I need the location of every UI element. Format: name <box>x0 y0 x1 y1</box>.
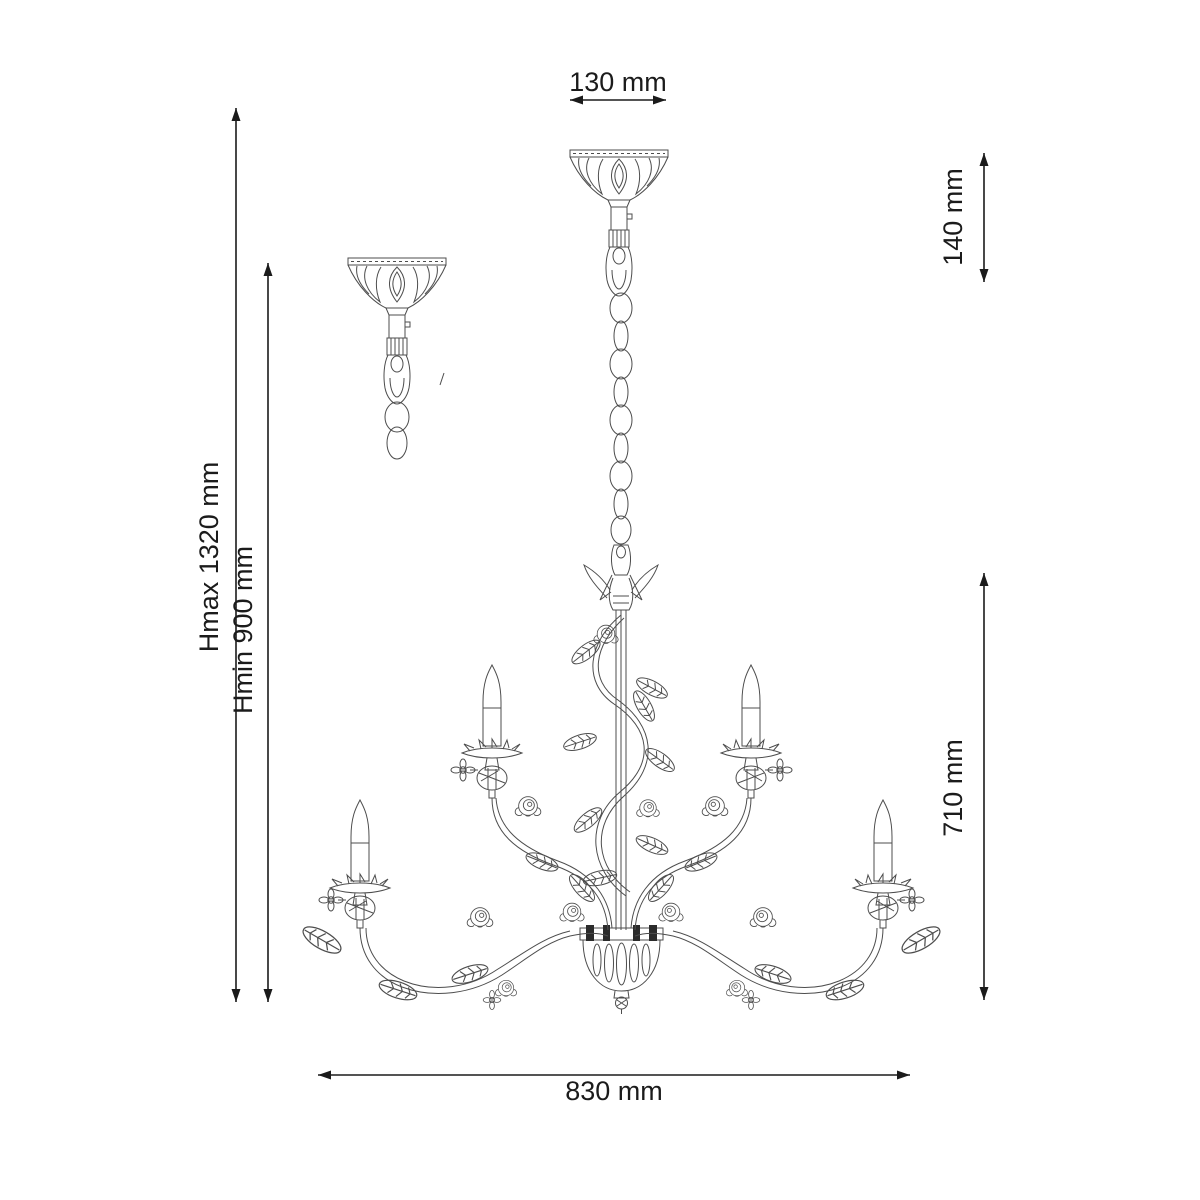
dimension-body-width: 830 mm <box>318 1071 910 1107</box>
dimension-label-hmin: Hmin 900 mm <box>228 546 258 714</box>
dimension-drawing: 130 mm 140 mm Hmax 1320 mm Hmin 900 mm 7… <box>0 0 1200 1200</box>
arms-left <box>299 665 612 1010</box>
dimension-label-body-height: 710 mm <box>938 739 968 837</box>
dimension-canopy-height: 140 mm <box>938 153 989 282</box>
dimension-label-canopy-height: 140 mm <box>938 168 968 266</box>
dimension-hmin: Hmin 900 mm <box>228 263 273 1002</box>
dimension-body-height: 710 mm <box>938 573 989 1000</box>
bottom-bowl <box>580 925 663 1014</box>
canopy-detail-drawing <box>348 258 446 459</box>
top-finial <box>584 545 658 610</box>
dimension-label-top-width: 130 mm <box>569 67 667 97</box>
central-stem-vine <box>562 610 678 930</box>
chandelier-drawing <box>299 150 944 1014</box>
chain <box>610 293 632 544</box>
dimension-label-body-width: 830 mm <box>565 1076 663 1106</box>
arms-right <box>631 665 944 1010</box>
dimension-top-width: 130 mm <box>569 67 667 105</box>
dimension-label-hmax: Hmax 1320 mm <box>194 462 224 653</box>
